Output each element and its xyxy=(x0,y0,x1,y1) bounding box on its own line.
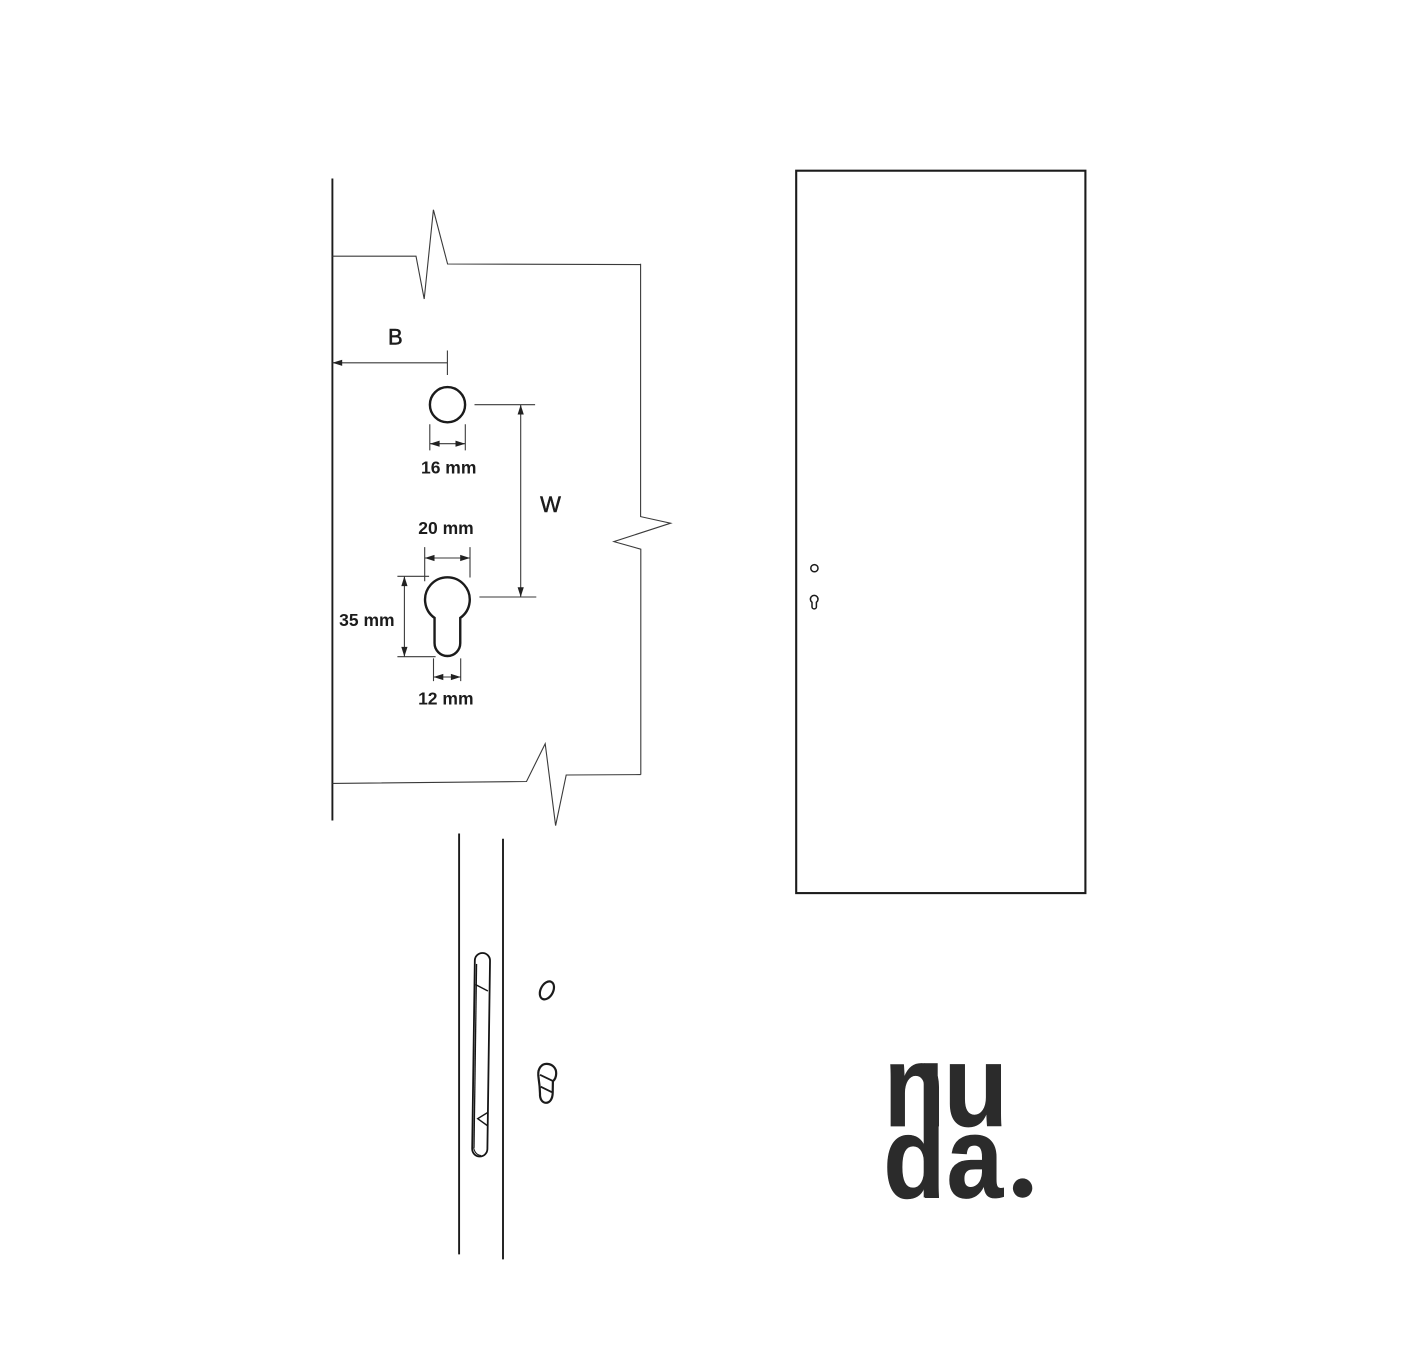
svg-text:16 mm: 16 mm xyxy=(421,457,476,477)
svg-text:B: B xyxy=(388,324,403,349)
svg-text:12 mm: 12 mm xyxy=(418,689,473,709)
svg-text:a: a xyxy=(947,1093,1005,1223)
svg-text:35 mm: 35 mm xyxy=(339,610,394,630)
svg-text:20 mm: 20 mm xyxy=(418,518,473,538)
svg-text:W: W xyxy=(540,492,561,517)
